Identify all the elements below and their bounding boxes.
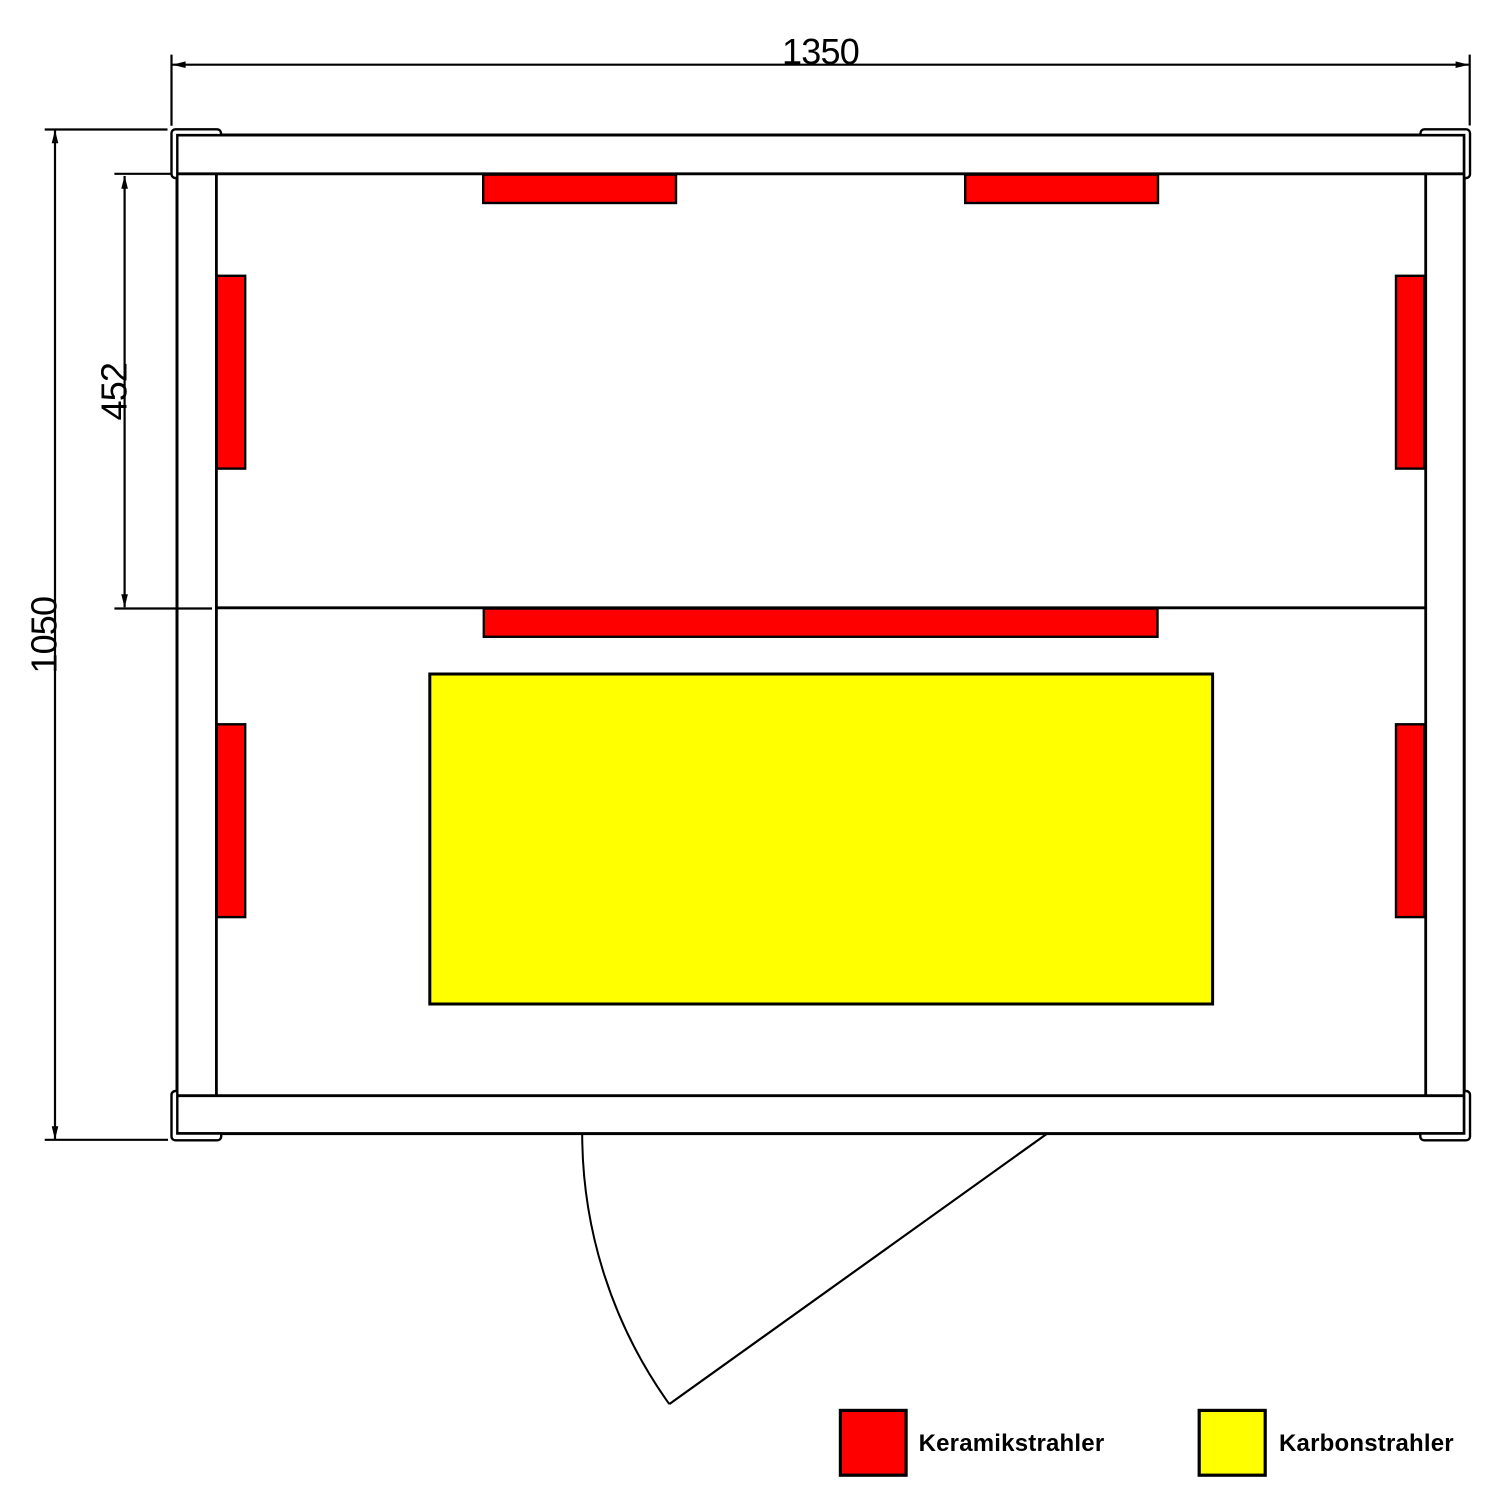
svg-text:Keramikstrahler: Keramikstrahler — [919, 1430, 1105, 1457]
svg-text:1050: 1050 — [23, 597, 64, 674]
svg-text:Karbonstrahler: Karbonstrahler — [1279, 1430, 1454, 1457]
svg-text:452: 452 — [93, 363, 134, 421]
svg-text:1350: 1350 — [782, 31, 859, 72]
